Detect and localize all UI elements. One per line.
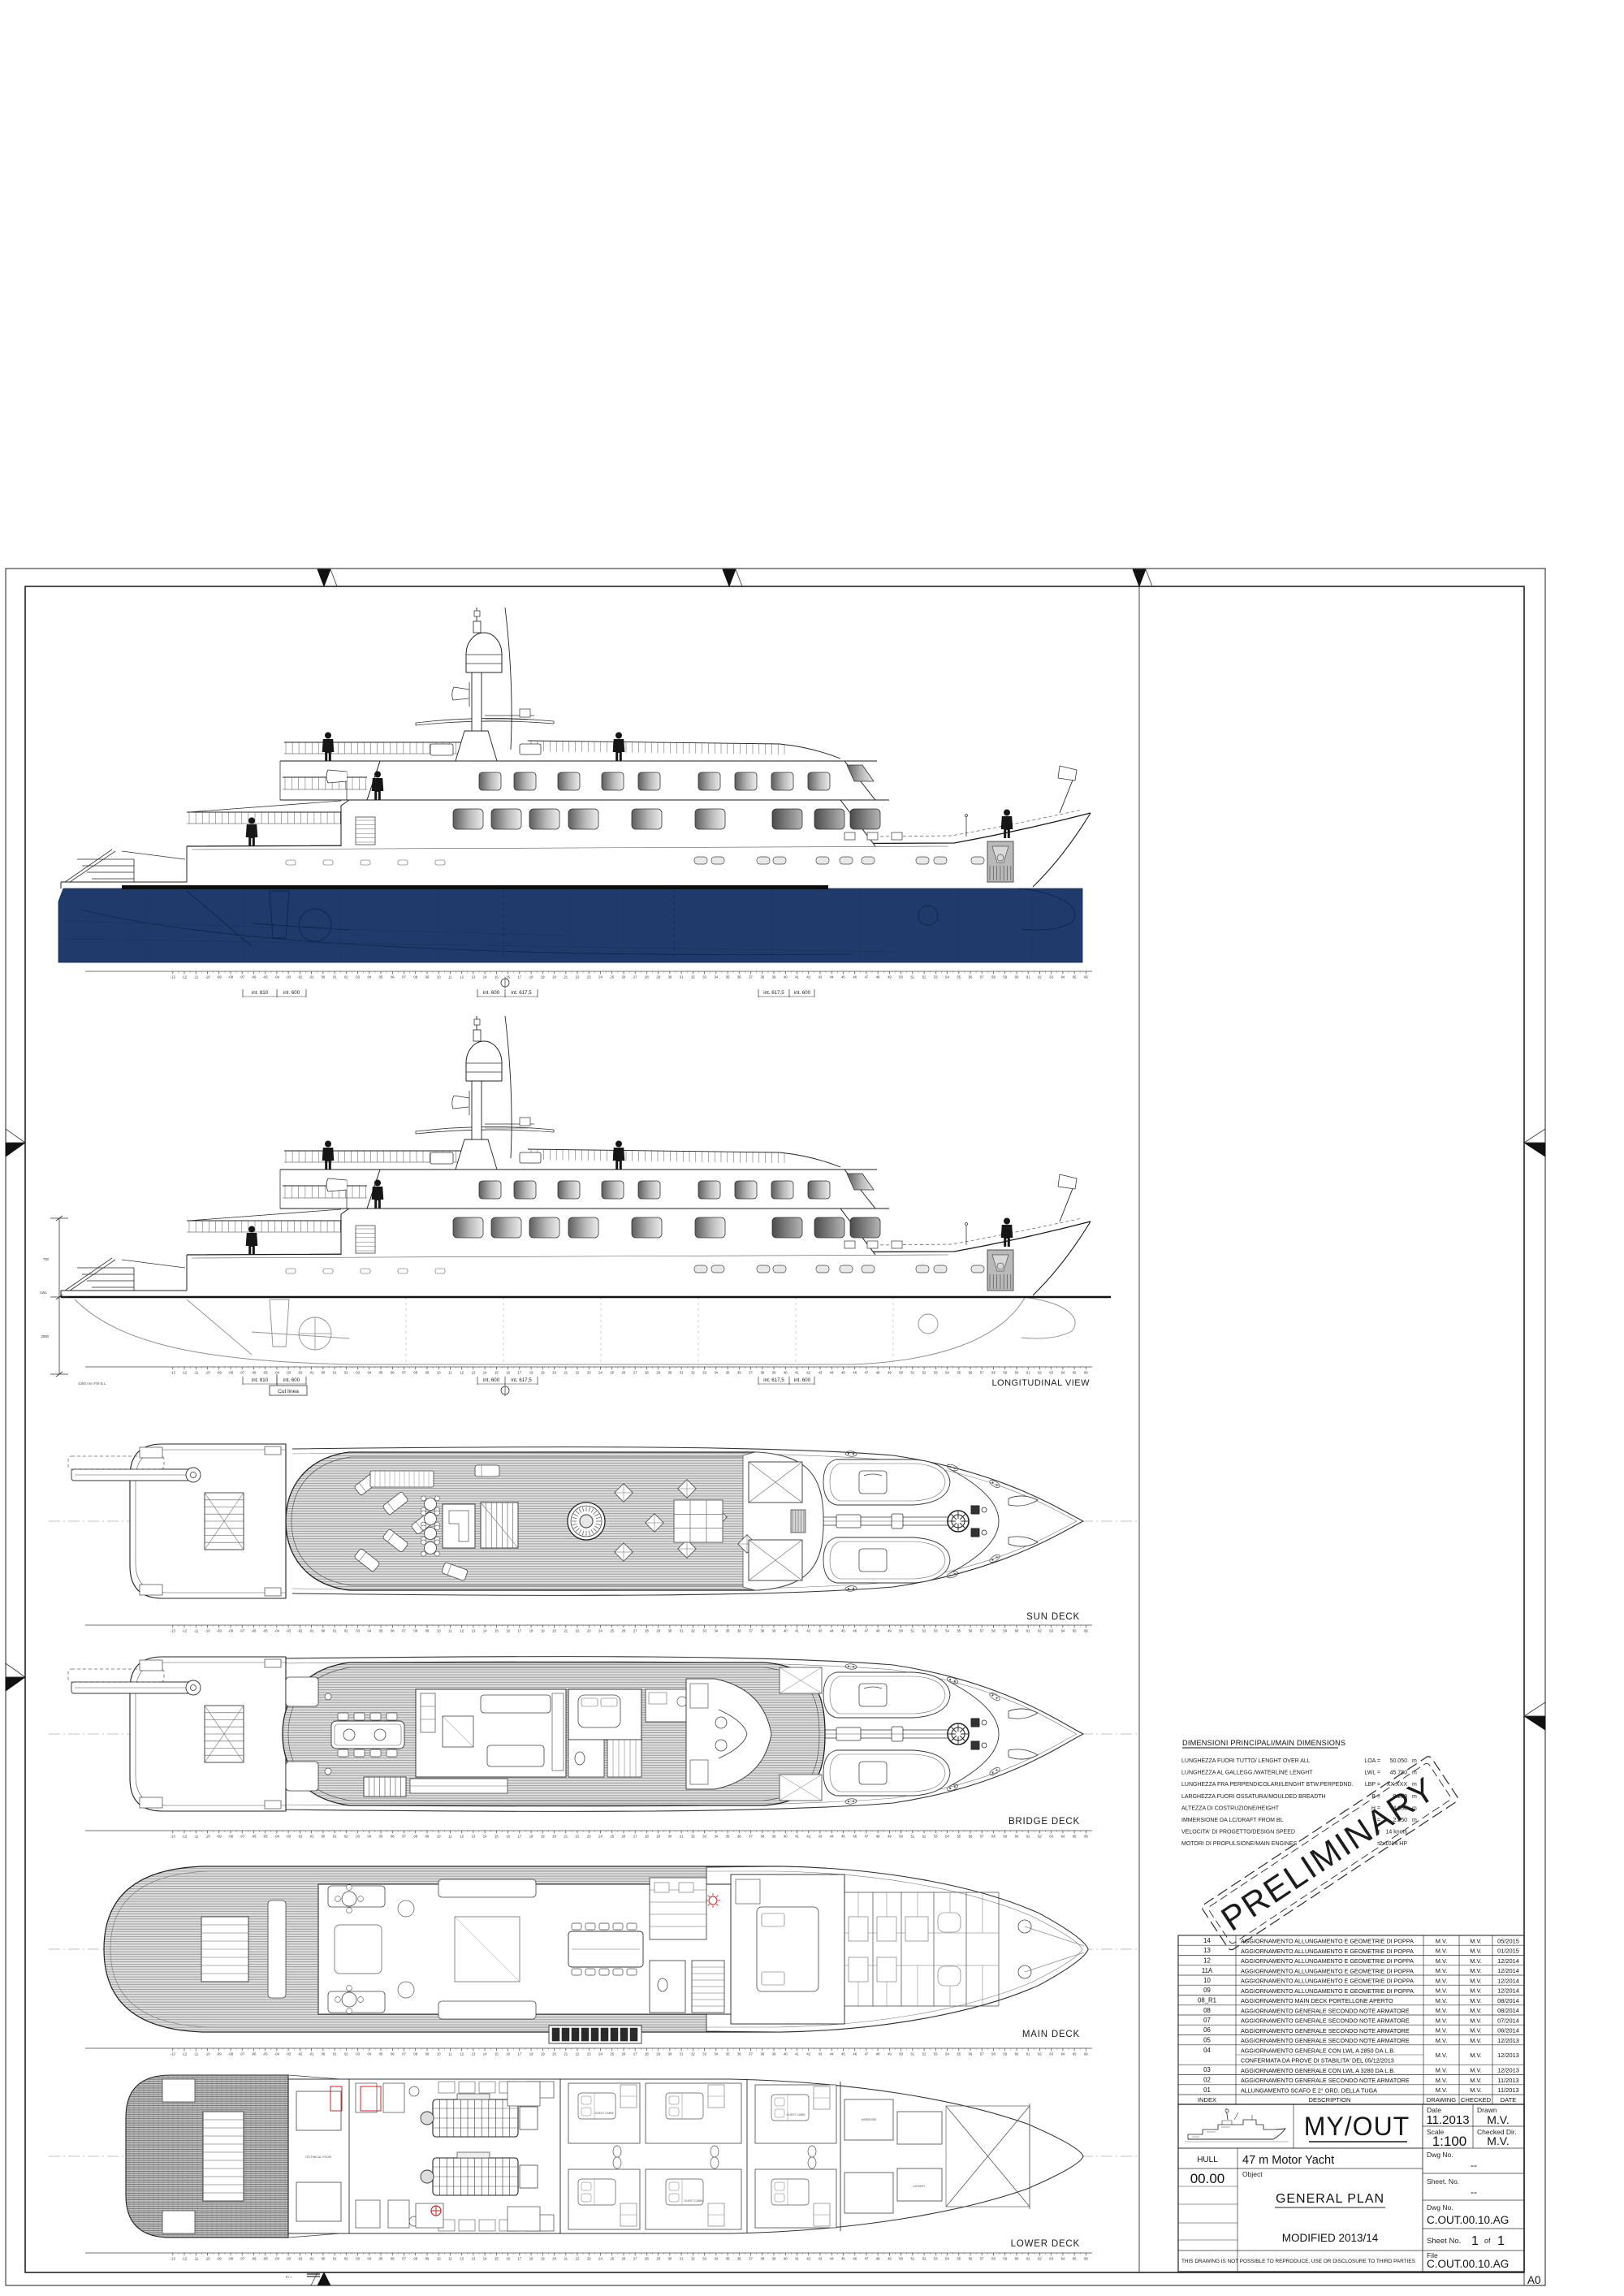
svg-text:20: 20 [552, 1629, 556, 1633]
svg-text:IMMERSIONE DA LC/DRAFT FROM BL: IMMERSIONE DA LC/DRAFT FROM BL [1181, 1818, 1284, 1823]
svg-text:61: 61 [1026, 1371, 1030, 1375]
svg-text:25: 25 [610, 1371, 614, 1375]
svg-text:13: 13 [472, 975, 476, 979]
svg-text:19: 19 [541, 2257, 545, 2261]
svg-text:58: 58 [991, 975, 996, 979]
svg-text:52: 52 [922, 1371, 926, 1375]
svg-text:-09: -09 [217, 1371, 222, 1375]
svg-text:12/2014: 12/2014 [1497, 1957, 1519, 1965]
svg-text:21: 21 [564, 975, 568, 979]
svg-text:-05: -05 [263, 1629, 269, 1633]
svg-text:01: 01 [333, 2257, 337, 2261]
svg-text:AGGIORNAMENTO GENERALE SECONDO: AGGIORNAMENTO GENERALE SECONDO NOTE ARMA… [1241, 2027, 1410, 2034]
svg-text:61: 61 [1026, 975, 1030, 979]
svg-text:06: 06 [391, 975, 395, 979]
svg-text:AGGIORNAMENTO ALLUNGAMENTO E G: AGGIORNAMENTO ALLUNGAMENTO E GEOMETRIE D… [1241, 1948, 1414, 1955]
svg-text:-13: -13 [171, 975, 176, 979]
svg-text:2850: 2850 [41, 1334, 50, 1338]
svg-text:27: 27 [633, 1629, 637, 1633]
svg-text:35: 35 [726, 1835, 730, 1839]
svg-text:55: 55 [957, 1629, 961, 1633]
svg-text:AGGIORNAMENTO ALLUNGAMENTO E G: AGGIORNAMENTO ALLUNGAMENTO E GEOMETRIE D… [1241, 1987, 1414, 1995]
svg-text:45: 45 [841, 975, 845, 979]
svg-text:51: 51 [910, 1371, 914, 1375]
svg-text:03: 03 [356, 2257, 360, 2261]
svg-text:1:100: 1:100 [1432, 2134, 1467, 2149]
svg-text:MY/OUT: MY/OUT [1304, 2112, 1410, 2141]
svg-text:29: 29 [656, 1835, 660, 1839]
svg-text:AGGIORNAMENTO GENERALE SECONDO: AGGIORNAMENTO GENERALE SECONDO NOTE ARMA… [1241, 2007, 1410, 2014]
svg-text:46: 46 [853, 1371, 857, 1375]
svg-text:33: 33 [702, 1371, 706, 1375]
svg-text:HULL: HULL [1197, 2155, 1218, 2164]
svg-text:14: 14 [483, 1629, 487, 1633]
svg-text:38: 38 [760, 1629, 764, 1633]
svg-text:36: 36 [737, 2257, 741, 2261]
svg-text:18: 18 [529, 1371, 533, 1375]
svg-text:05: 05 [379, 2052, 383, 2056]
svg-text:53: 53 [934, 975, 938, 979]
svg-text:08: 08 [413, 975, 417, 979]
svg-text:32: 32 [691, 1835, 695, 1839]
svg-text:50: 50 [899, 2257, 903, 2261]
svg-text:51: 51 [910, 975, 914, 979]
svg-text:M.V.: M.V. [1487, 2113, 1510, 2126]
svg-text:16: 16 [506, 2052, 510, 2056]
svg-text:55: 55 [957, 1371, 961, 1375]
svg-text:38: 38 [760, 1835, 764, 1839]
svg-text:M.V.: M.V. [1436, 1957, 1448, 1965]
svg-text:03: 03 [356, 1371, 360, 1375]
svg-text:GUEST CABIN: GUEST CABIN [685, 2199, 703, 2203]
svg-text:44: 44 [830, 1629, 834, 1633]
svg-text:28: 28 [645, 1629, 649, 1633]
svg-text:06: 06 [391, 2257, 395, 2261]
svg-text:GUEST CABIN: GUEST CABIN [787, 2113, 806, 2117]
svg-text:m =: m = [286, 2275, 292, 2279]
svg-text:15: 15 [495, 2257, 499, 2261]
svg-text:13: 13 [472, 1835, 476, 1839]
svg-text:47: 47 [865, 2257, 869, 2261]
svg-text:60: 60 [1015, 2257, 1019, 2261]
svg-text:00: 00 [322, 975, 326, 979]
svg-text:05: 05 [379, 2257, 383, 2261]
svg-text:-07: -07 [240, 1629, 245, 1633]
svg-text:M.V.: M.V. [1470, 2067, 1482, 2074]
svg-text:12: 12 [460, 1629, 464, 1633]
svg-text:56: 56 [969, 1835, 973, 1839]
svg-text:51: 51 [910, 2052, 914, 2056]
svg-text:53: 53 [934, 2052, 938, 2056]
svg-text:09: 09 [1203, 1987, 1211, 1994]
svg-text:32: 32 [691, 1371, 695, 1375]
svg-text:-13: -13 [171, 1835, 176, 1839]
svg-text:33: 33 [702, 1835, 706, 1839]
svg-text:CHECKED: CHECKED [1461, 2096, 1492, 2104]
svg-text:06: 06 [391, 1835, 395, 1839]
svg-text:58: 58 [991, 2257, 996, 2261]
svg-text:14: 14 [483, 1835, 487, 1839]
svg-text:M.V.: M.V. [1436, 1997, 1448, 2004]
svg-text:36: 36 [737, 1371, 741, 1375]
svg-text:DIMENSIONI PRINCIPALI/MAIN DIM: DIMENSIONI PRINCIPALI/MAIN DIMENSIONS [1182, 1739, 1345, 1747]
svg-text:01/2015: 01/2015 [1497, 1948, 1519, 1955]
svg-text:m: m [1412, 1758, 1417, 1764]
svg-text:27: 27 [633, 975, 637, 979]
svg-text:09: 09 [425, 1835, 430, 1839]
svg-text:LUNGHEZZA FRA PERPENDICOLARI/L: LUNGHEZZA FRA PERPENDICOLARI/LENGHT BTW.… [1181, 1782, 1354, 1788]
svg-text:36: 36 [737, 1629, 741, 1633]
svg-text:11: 11 [448, 975, 452, 979]
svg-text:int. 600: int. 600 [483, 990, 500, 996]
svg-text:AGGIORNAMENTO ALLUNGAMENTO E G: AGGIORNAMENTO ALLUNGAMENTO E GEOMETRIE D… [1241, 1967, 1414, 1974]
svg-text:52: 52 [922, 2257, 926, 2261]
svg-text:45: 45 [841, 2257, 845, 2261]
svg-text:49: 49 [888, 2257, 892, 2261]
svg-text:26: 26 [622, 1629, 626, 1633]
svg-text:-08: -08 [228, 975, 234, 979]
svg-text:61: 61 [1026, 1835, 1030, 1839]
svg-text:17: 17 [517, 1835, 521, 1839]
svg-text:38: 38 [760, 2257, 764, 2261]
svg-text:45: 45 [841, 2052, 845, 2056]
svg-text:57: 57 [980, 1371, 984, 1375]
svg-text:LOA =: LOA = [1364, 1758, 1380, 1764]
svg-text:07: 07 [402, 1629, 406, 1633]
svg-text:int. 600: int. 600 [283, 990, 300, 996]
svg-text:-03: -03 [286, 1835, 292, 1839]
svg-text:58: 58 [991, 1835, 996, 1839]
svg-text:34: 34 [714, 975, 718, 979]
svg-text:48: 48 [876, 1371, 880, 1375]
svg-text:00: 00 [322, 1371, 326, 1375]
svg-text:33: 33 [702, 1629, 706, 1633]
svg-text:49: 49 [888, 975, 892, 979]
svg-text:--: -- [1471, 2186, 1477, 2198]
svg-text:BRIDGE DECK: BRIDGE DECK [1009, 1817, 1080, 1827]
svg-text:00: 00 [322, 2257, 326, 2261]
svg-text:37: 37 [749, 975, 753, 979]
svg-text:54: 54 [945, 975, 949, 979]
svg-text:53: 53 [934, 2257, 938, 2261]
svg-text:39: 39 [772, 1629, 776, 1633]
svg-text:22: 22 [576, 975, 580, 979]
svg-text:31: 31 [680, 2052, 684, 2056]
svg-text:24: 24 [598, 1629, 603, 1633]
svg-text:01: 01 [333, 2052, 337, 2056]
svg-text:26: 26 [622, 1835, 626, 1839]
svg-text:-11: -11 [193, 2257, 198, 2261]
svg-text:19: 19 [541, 1629, 545, 1633]
svg-text:12/2013: 12/2013 [1497, 2052, 1519, 2059]
svg-text:-08: -08 [228, 1371, 234, 1375]
svg-text:15: 15 [495, 1835, 499, 1839]
svg-text:52: 52 [922, 975, 926, 979]
svg-text:03: 03 [1203, 2066, 1211, 2073]
svg-text:66: 66 [1084, 2257, 1088, 2261]
svg-text:-13: -13 [171, 1629, 176, 1633]
svg-text:34: 34 [714, 1629, 718, 1633]
svg-text:M.V.: M.V. [1487, 2134, 1510, 2147]
svg-text:13: 13 [1203, 1947, 1211, 1954]
svg-text:M.V.: M.V. [1436, 2027, 1448, 2034]
svg-text:39: 39 [772, 1835, 776, 1839]
svg-text:25: 25 [610, 975, 614, 979]
svg-text:07: 07 [402, 1835, 406, 1839]
svg-text:06: 06 [391, 2052, 395, 2056]
svg-text:45: 45 [841, 1835, 845, 1839]
svg-text:DRAWING: DRAWING [1427, 2096, 1457, 2104]
svg-text:M.V.: M.V. [1470, 1948, 1482, 1955]
svg-text:-06: -06 [251, 2052, 257, 2056]
svg-text:12: 12 [460, 1835, 464, 1839]
svg-text:34: 34 [714, 1835, 718, 1839]
svg-text:02: 02 [344, 1371, 348, 1375]
svg-text:M.V.: M.V. [1436, 1948, 1448, 1955]
svg-text:46: 46 [853, 2052, 857, 2056]
svg-text:Dwg No.: Dwg No. [1427, 2203, 1453, 2212]
svg-text:13: 13 [472, 2052, 476, 2056]
svg-text:50: 50 [899, 2052, 903, 2056]
svg-text:07: 07 [402, 975, 406, 979]
svg-text:34: 34 [714, 2257, 718, 2261]
svg-text:21: 21 [564, 2257, 568, 2261]
svg-text:AGGIORNAMENTO GENERALE CON LWL: AGGIORNAMENTO GENERALE CON LWL A 3280 DA… [1241, 2067, 1395, 2074]
svg-text:09: 09 [425, 2052, 430, 2056]
svg-text:-03: -03 [286, 1629, 292, 1633]
svg-text:M.V.: M.V. [1436, 1937, 1448, 1944]
svg-text:-05: -05 [263, 1371, 269, 1375]
svg-text:-06: -06 [251, 975, 257, 979]
svg-text:27: 27 [633, 2257, 637, 2261]
svg-text:16: 16 [506, 1629, 510, 1633]
svg-text:AGGIORNAMENTO GENERALE CON LWL: AGGIORNAMENTO GENERALE CON LWL A 2850 DA… [1241, 2047, 1395, 2054]
svg-text:M.V.: M.V. [1436, 1987, 1448, 1995]
svg-text:21: 21 [564, 1371, 568, 1375]
svg-text:51: 51 [910, 1835, 914, 1839]
svg-text:04: 04 [367, 2257, 371, 2261]
svg-text:42: 42 [806, 1835, 810, 1839]
svg-text:C.OUT.00.10.AG: C.OUT.00.10.AG [1427, 2214, 1509, 2226]
svg-text:57: 57 [980, 1629, 984, 1633]
svg-text:17: 17 [517, 2257, 521, 2261]
svg-text:56: 56 [969, 2052, 973, 2056]
svg-text:04: 04 [367, 2052, 371, 2056]
svg-text:59: 59 [1003, 1629, 1007, 1633]
svg-text:13: 13 [472, 2257, 476, 2261]
svg-text:52: 52 [922, 1835, 926, 1839]
svg-text:02: 02 [344, 975, 348, 979]
svg-text:31: 31 [680, 1835, 684, 1839]
svg-text:20: 20 [552, 2257, 556, 2261]
svg-text:06: 06 [391, 1371, 395, 1375]
svg-text:50: 50 [899, 1371, 903, 1375]
svg-text:57: 57 [980, 2052, 984, 2056]
svg-text:43: 43 [818, 1371, 823, 1375]
svg-text:00.00: 00.00 [1190, 2171, 1225, 2186]
svg-text:M.V.: M.V. [1470, 1987, 1482, 1995]
svg-text:M.V.: M.V. [1470, 2007, 1482, 2014]
svg-text:26: 26 [622, 975, 626, 979]
svg-text:41: 41 [795, 975, 799, 979]
svg-text:M.V.: M.V. [1470, 2017, 1482, 2024]
svg-text:54: 54 [945, 2257, 949, 2261]
svg-text:19: 19 [541, 975, 545, 979]
svg-text:24: 24 [598, 2052, 603, 2056]
svg-text:10: 10 [437, 1835, 441, 1839]
svg-text:-03: -03 [286, 975, 292, 979]
svg-text:33: 33 [702, 2052, 706, 2056]
svg-text:02: 02 [344, 1629, 348, 1633]
svg-text:-05: -05 [263, 975, 269, 979]
svg-text:20: 20 [552, 1835, 556, 1839]
svg-text:int. 600: int. 600 [794, 1377, 811, 1383]
svg-text:50: 50 [899, 975, 903, 979]
svg-text:44: 44 [830, 1371, 834, 1375]
svg-text:25: 25 [610, 1629, 614, 1633]
svg-text:23: 23 [587, 1629, 591, 1633]
svg-text:int. 617,5: int. 617,5 [511, 1377, 532, 1383]
svg-text:37: 37 [749, 1371, 753, 1375]
svg-text:16: 16 [506, 975, 510, 979]
svg-text:00: 00 [322, 1835, 326, 1839]
svg-text:LWL: LWL [40, 1291, 47, 1295]
svg-text:65: 65 [1073, 1629, 1077, 1633]
svg-text:57: 57 [980, 1835, 984, 1839]
svg-text:M.V.: M.V. [1470, 2077, 1482, 2084]
svg-text:-09: -09 [217, 975, 222, 979]
svg-text:39: 39 [772, 2052, 776, 2056]
svg-text:54: 54 [945, 2052, 949, 2056]
svg-text:MOTORI DI PROPULSIONE/MAIN ENG: MOTORI DI PROPULSIONE/MAIN ENGINES [1181, 1841, 1298, 1847]
svg-text:M.V.: M.V. [1470, 1997, 1482, 2004]
svg-text:M.V.: M.V. [1436, 2052, 1448, 2059]
svg-text:20: 20 [552, 1371, 556, 1375]
svg-text:int. 600: int. 600 [794, 990, 811, 996]
svg-text:23: 23 [587, 1371, 591, 1375]
svg-text:35: 35 [726, 975, 730, 979]
svg-text:-12: -12 [182, 1629, 188, 1633]
svg-text:37: 37 [749, 2052, 753, 2056]
svg-text:28: 28 [645, 1835, 649, 1839]
svg-text:02: 02 [344, 2257, 348, 2261]
svg-text:01: 01 [333, 1629, 337, 1633]
svg-text:LONGITUDINAL VIEW: LONGITUDINAL VIEW [991, 1378, 1090, 1388]
svg-text:61: 61 [1026, 2052, 1030, 2056]
svg-text:65: 65 [1073, 975, 1077, 979]
svg-text:48: 48 [876, 2052, 880, 2056]
svg-text:41: 41 [795, 1371, 799, 1375]
svg-text:05: 05 [379, 975, 383, 979]
svg-text:32: 32 [691, 975, 695, 979]
svg-text:LAUNDRY: LAUNDRY [913, 2185, 926, 2188]
svg-text:47: 47 [865, 1629, 869, 1633]
svg-text:LWL =: LWL = [1364, 1771, 1380, 1776]
svg-text:62: 62 [1038, 1371, 1042, 1375]
svg-text:42: 42 [806, 2257, 810, 2261]
svg-text:18: 18 [529, 2052, 533, 2056]
svg-text:-11: -11 [193, 1371, 198, 1375]
svg-text:-12: -12 [182, 2052, 188, 2056]
svg-text:26: 26 [622, 2052, 626, 2056]
svg-text:14: 14 [483, 2257, 487, 2261]
svg-text:--: -- [1471, 2160, 1477, 2171]
svg-text:30: 30 [668, 1629, 672, 1633]
svg-text:11: 11 [448, 1835, 452, 1839]
svg-text:-05: -05 [263, 1835, 269, 1839]
svg-text:58: 58 [991, 2052, 996, 2056]
svg-text:00: 00 [322, 2052, 326, 2056]
svg-text:-07: -07 [240, 1835, 245, 1839]
svg-text:36: 36 [737, 975, 741, 979]
svg-text:45.780: 45.780 [1390, 1771, 1408, 1776]
svg-text:11: 11 [448, 2052, 452, 2056]
svg-text:47 m Motor Yacht: 47 m Motor Yacht [1242, 2154, 1334, 2167]
svg-text:24: 24 [598, 2257, 603, 2261]
svg-text:46: 46 [853, 2257, 857, 2261]
svg-text:-04: -04 [274, 975, 280, 979]
svg-text:47: 47 [865, 975, 869, 979]
svg-text:05: 05 [379, 1371, 383, 1375]
svg-text:08: 08 [413, 1835, 417, 1839]
svg-text:-02: -02 [297, 2257, 303, 2261]
svg-text:29: 29 [656, 2257, 660, 2261]
svg-text:M.V.: M.V. [1470, 2037, 1482, 2044]
svg-text:48: 48 [876, 2257, 880, 2261]
svg-text:4380 mm FM B.L.: 4380 mm FM B.L. [78, 1381, 107, 1386]
svg-text:10: 10 [437, 2257, 441, 2261]
svg-text:-11: -11 [193, 1835, 198, 1839]
svg-text:-03: -03 [286, 2257, 292, 2261]
svg-text:18: 18 [529, 1835, 533, 1839]
svg-text:M.V.: M.V. [1470, 1957, 1482, 1965]
svg-text:23: 23 [587, 2257, 591, 2261]
svg-text:19: 19 [541, 1835, 545, 1839]
svg-text:int. 600: int. 600 [483, 1377, 500, 1383]
svg-text:28: 28 [645, 2052, 649, 2056]
svg-text:42: 42 [806, 975, 810, 979]
svg-text:52: 52 [922, 1629, 926, 1633]
svg-text:-11: -11 [193, 1629, 198, 1633]
svg-text:49: 49 [888, 1629, 892, 1633]
svg-text:09: 09 [425, 975, 430, 979]
svg-text:42: 42 [806, 2052, 810, 2056]
svg-text:12/2014: 12/2014 [1497, 1967, 1519, 1974]
svg-text:61: 61 [1026, 1629, 1030, 1633]
svg-text:47: 47 [865, 1371, 869, 1375]
svg-text:59: 59 [1003, 2257, 1007, 2261]
svg-text:GENERAL PLAN: GENERAL PLAN [1276, 2192, 1384, 2206]
svg-text:-11: -11 [193, 975, 198, 979]
svg-text:M.V.: M.V. [1470, 1937, 1482, 1944]
svg-text:57: 57 [980, 2257, 984, 2261]
svg-text:-07: -07 [240, 2052, 245, 2056]
svg-text:32: 32 [691, 2052, 695, 2056]
svg-text:10: 10 [437, 1629, 441, 1633]
svg-text:-12: -12 [182, 1371, 188, 1375]
svg-text:-10: -10 [205, 2257, 210, 2261]
svg-text:28: 28 [645, 2257, 649, 2261]
svg-text:51: 51 [910, 1629, 914, 1633]
svg-text:22: 22 [576, 2257, 580, 2261]
svg-text:11A: 11A [1202, 1967, 1213, 1974]
svg-text:63: 63 [1049, 1371, 1053, 1375]
svg-text:23: 23 [587, 975, 591, 979]
svg-text:01: 01 [333, 1371, 337, 1375]
svg-text:03: 03 [356, 2052, 360, 2056]
svg-text:M.V.: M.V. [1470, 2052, 1482, 2059]
svg-text:31: 31 [680, 2257, 684, 2261]
